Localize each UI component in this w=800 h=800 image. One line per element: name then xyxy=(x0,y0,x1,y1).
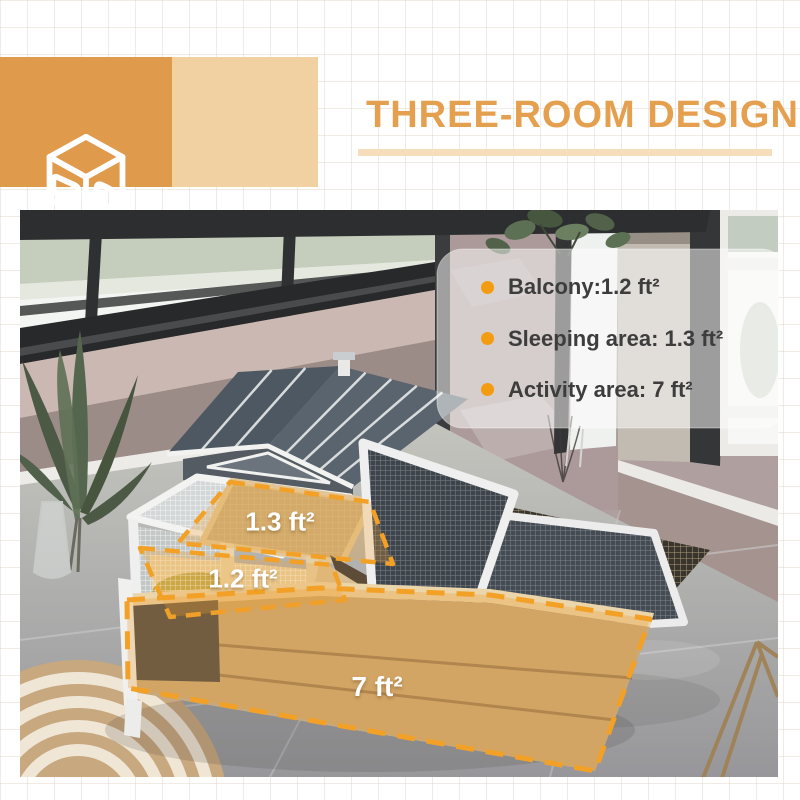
brand-logo-block xyxy=(0,57,172,187)
callout-row-balcony: Balcony:1.2 ft² xyxy=(481,274,778,300)
label-sleeping-area: 1.3 ft² xyxy=(245,507,314,538)
callout-row-activity-area: Activity area: 7 ft² xyxy=(481,377,778,403)
marketing-page: THREE-ROOM DESIGN xyxy=(0,0,800,800)
callout-label: Activity area: 7 ft² xyxy=(508,377,693,403)
page-title: THREE-ROOM DESIGN xyxy=(366,94,799,137)
callout-label: Balcony:1.2 ft² xyxy=(508,274,660,300)
brand-logo-accent-block xyxy=(172,57,318,187)
bullet-icon xyxy=(481,383,494,396)
title-underline xyxy=(358,149,772,156)
bullet-icon xyxy=(481,281,494,294)
area-callout-list: Balcony:1.2 ft² Sleeping area: 1.3 ft² A… xyxy=(437,249,778,428)
label-balcony: 1.2 ft² xyxy=(208,564,277,595)
callout-row-sleeping-area: Sleeping area: 1.3 ft² xyxy=(481,326,778,352)
product-photo: Balcony:1.2 ft² Sleeping area: 1.3 ft² A… xyxy=(20,210,778,777)
callout-label: Sleeping area: 1.3 ft² xyxy=(508,326,723,352)
label-activity-area: 7 ft² xyxy=(351,671,402,703)
bullet-icon xyxy=(481,332,494,345)
